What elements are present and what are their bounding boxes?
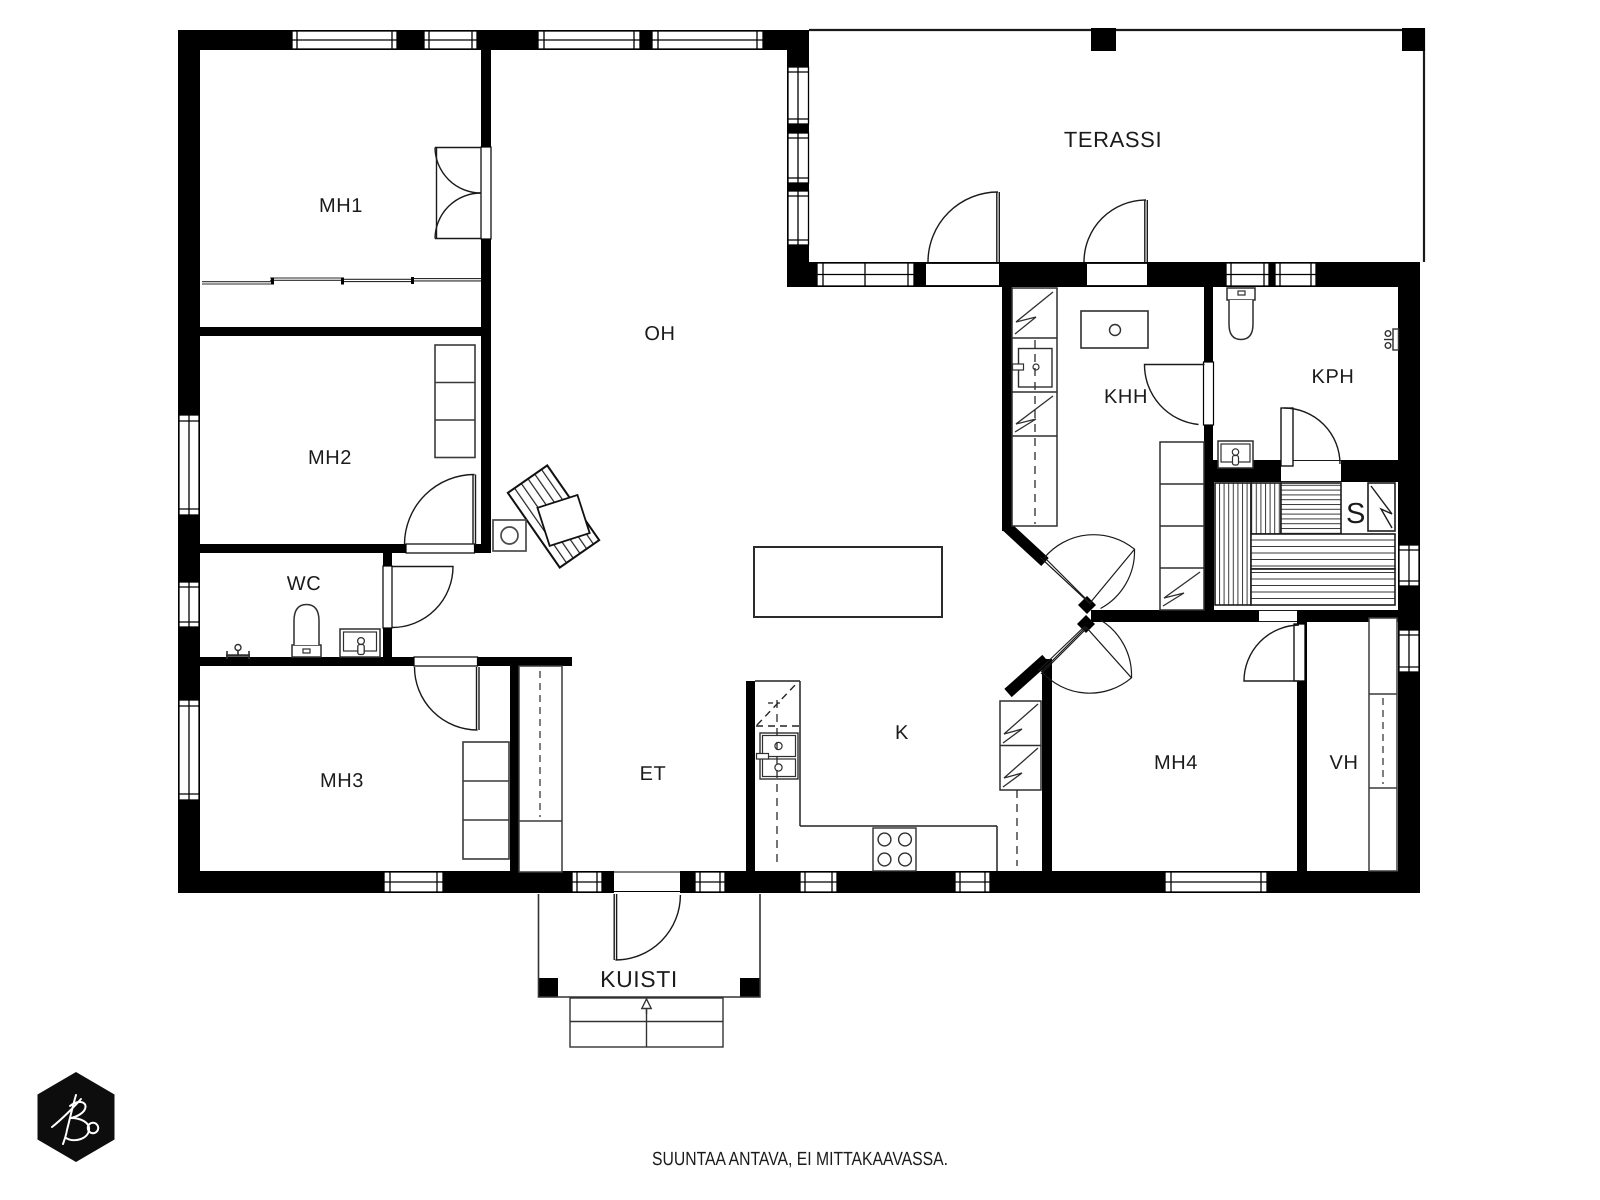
svg-text:OH: OH	[644, 323, 675, 345]
svg-text:K: K	[895, 722, 909, 744]
svg-text:SUUNTAA ANTAVA, EI MITTAKAAVAS: SUUNTAA ANTAVA, EI MITTAKAAVASSA.	[652, 1149, 948, 1170]
svg-text:VH: VH	[1330, 752, 1359, 774]
svg-text:KHH: KHH	[1104, 386, 1148, 408]
svg-text:TERASSI: TERASSI	[1064, 127, 1162, 152]
svg-text:S: S	[1346, 498, 1366, 530]
svg-text:ET: ET	[640, 763, 667, 785]
svg-text:MH2: MH2	[308, 447, 352, 469]
svg-text:KUISTI: KUISTI	[600, 966, 678, 992]
svg-text:KPH: KPH	[1312, 366, 1355, 388]
svg-text:MH1: MH1	[319, 195, 363, 217]
svg-text:WC: WC	[287, 573, 322, 595]
svg-text:MH3: MH3	[320, 770, 364, 792]
svg-text:MH4: MH4	[1154, 752, 1198, 774]
